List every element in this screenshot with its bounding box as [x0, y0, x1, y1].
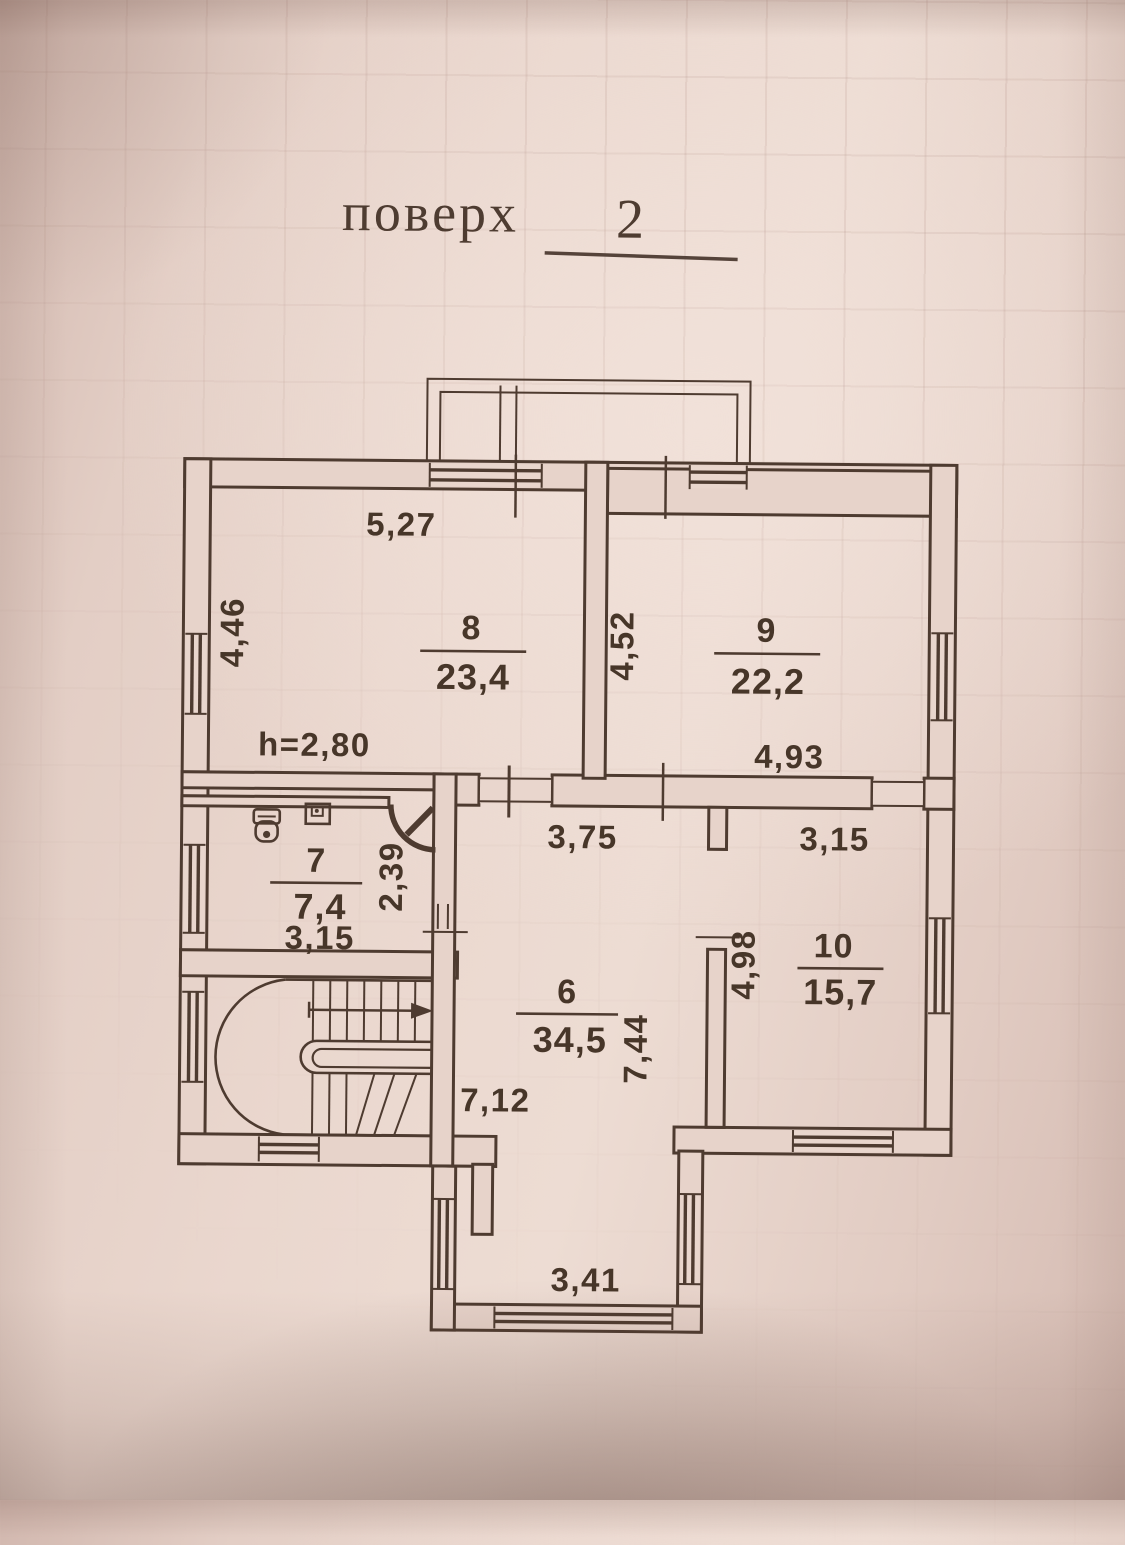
- room6-dim-right: 7,44: [616, 1013, 654, 1084]
- window-stairs-bottom: [259, 1136, 319, 1162]
- room9-dim-left: 4,52: [603, 610, 641, 681]
- floor-plan-svg: поверх 2: [0, 0, 1125, 1505]
- room6-dim-top: 3,75: [547, 818, 618, 856]
- window-room7-left: [183, 845, 206, 933]
- toilet-icon: [254, 809, 280, 841]
- room7-dim-bottom: 3,15: [284, 919, 355, 957]
- window-stairs-left: [181, 992, 204, 1082]
- floor-number: 2: [616, 188, 645, 250]
- ceiling-height-note: h=2,80: [258, 725, 371, 763]
- room10-dim-left: 4,98: [724, 929, 762, 1000]
- room8-area: 23,4: [436, 656, 510, 698]
- room7-annotations: 7 7,4 3,15 2,39: [270, 840, 410, 956]
- window-room10-bottom: [793, 1130, 893, 1153]
- balcony: [427, 379, 751, 466]
- floor-number-underline: [545, 253, 738, 260]
- room10-annotations: 3,15 4,98 10 15,7: [724, 819, 885, 1012]
- room9-dim-bottom: 4,93: [754, 738, 825, 776]
- room9-number: 9: [756, 612, 776, 650]
- window-bay-right: [679, 1194, 702, 1284]
- room10-number: 10: [814, 927, 854, 965]
- window-top-left: [430, 463, 542, 488]
- door-leaf: [407, 808, 433, 835]
- room8-annotations: 5,27 4,46 8 23,4 h=2,80: [212, 504, 527, 765]
- staircase: [215, 979, 434, 1136]
- room6-label-divider: [516, 1014, 618, 1015]
- window-bay-left: [433, 1199, 455, 1289]
- room7-number: 7: [306, 842, 326, 880]
- room7-dim-door: 2,39: [372, 841, 410, 912]
- room7-label-divider: [270, 882, 362, 883]
- door-opening-room8: [479, 765, 552, 818]
- room8-number: 8: [461, 609, 481, 647]
- room10-dim-top: 3,15: [799, 820, 870, 858]
- floor-label: поверх: [342, 182, 520, 244]
- room6-number: 6: [557, 973, 577, 1011]
- interior-walls: [179, 459, 957, 1171]
- stairs-up-arrow-icon: [309, 1002, 433, 1019]
- room10-area: 15,7: [803, 971, 877, 1013]
- room6-dim-mid: 7,12: [460, 1081, 531, 1119]
- room8-dim-left: 4,46: [213, 597, 251, 668]
- room6-dim-bay: 3,41: [550, 1261, 621, 1299]
- window-room9-right: [931, 633, 954, 720]
- room9-area: 22,2: [731, 660, 805, 702]
- room8-label-divider: [420, 651, 526, 652]
- window-bay-bottom: [494, 1306, 672, 1330]
- floor-plan-photo: поверх 2: [0, 0, 1125, 1505]
- room10-label-divider: [797, 968, 883, 969]
- stair-treads-lower: [312, 1073, 417, 1136]
- door-opening-room9: [872, 780, 924, 807]
- window-top-right: [690, 465, 747, 489]
- room9-annotations: 4,52 9 22,2 4,93: [602, 610, 826, 775]
- window-room10-right: [928, 918, 951, 1013]
- window-room8-left: [185, 634, 208, 714]
- room9-label-divider: [714, 653, 820, 654]
- room6-area: 34,5: [533, 1019, 607, 1061]
- title: поверх 2: [342, 182, 739, 259]
- room8-dim-top: 5,27: [366, 505, 437, 543]
